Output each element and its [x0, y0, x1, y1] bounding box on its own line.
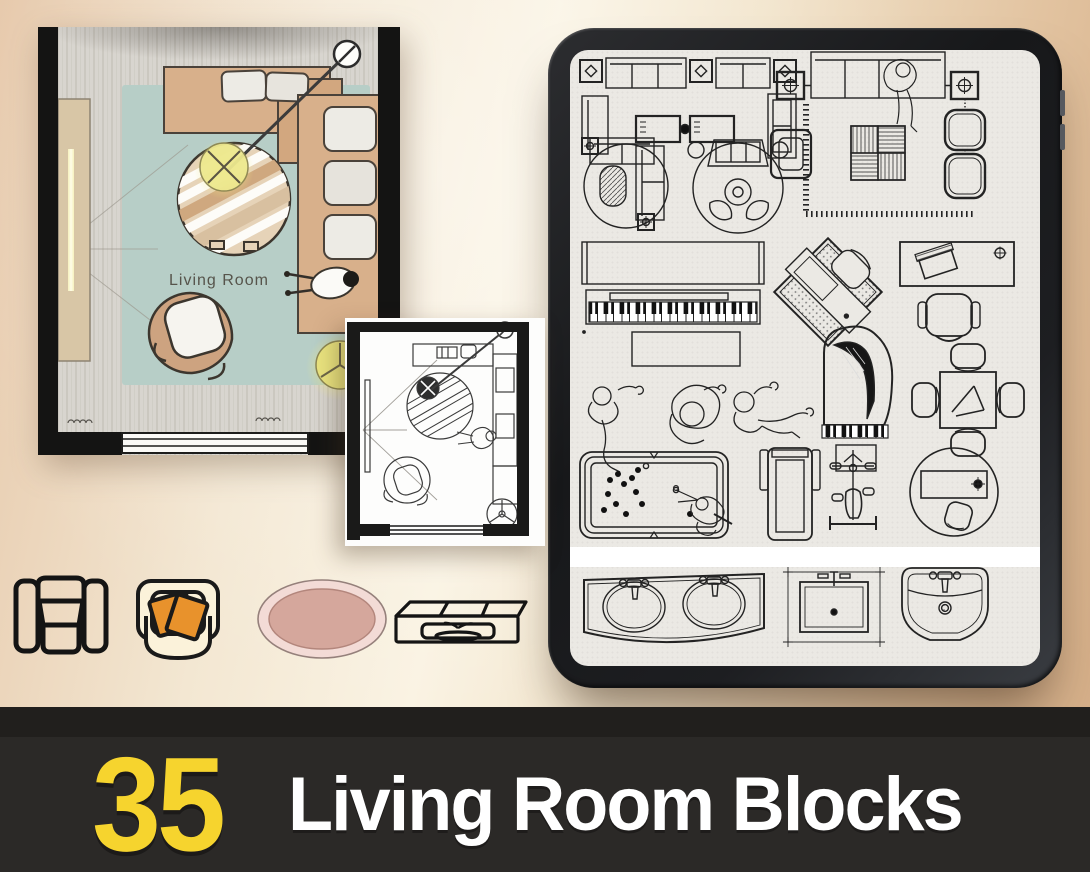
block-upright-piano — [582, 242, 764, 333]
block-sofa-set — [580, 58, 796, 158]
parquet-rug — [851, 126, 905, 180]
tablet-screen — [570, 50, 1040, 666]
armchair-outline-icon — [13, 573, 109, 661]
block-pedestal-sink — [902, 568, 988, 640]
block-person-sitting — [670, 385, 726, 444]
block-double-vanity — [584, 574, 764, 642]
window — [122, 433, 308, 453]
person-on-sofa — [884, 59, 917, 132]
block-office-chair — [918, 294, 980, 341]
tablet-device — [548, 28, 1062, 688]
banner-title: Living Room Blocks — [288, 767, 962, 843]
block-diagonal-desk — [769, 224, 895, 350]
block-square-sink — [783, 567, 885, 647]
oval-rug-icon — [255, 578, 389, 660]
tv-console — [58, 99, 90, 361]
block-person-reclining — [734, 382, 813, 438]
block-grand-piano — [822, 327, 892, 438]
block-treadmill — [760, 448, 820, 540]
block-round-rug-set — [688, 140, 788, 233]
block-piano-bench — [632, 332, 740, 366]
block-desk-laptop — [900, 242, 1014, 286]
title-banner: 35 Living Room Blocks — [0, 707, 1090, 872]
block-exercise-bike — [830, 450, 876, 530]
sketch-floor-plan — [345, 318, 545, 546]
block-pool-table — [580, 452, 732, 538]
volume-down-button — [1060, 124, 1065, 150]
block-count: 35 — [92, 738, 222, 872]
block-rug-scene — [771, 52, 985, 214]
block-round-rug-table — [910, 448, 998, 536]
block-table-four-chairs — [912, 344, 1024, 456]
volume-up-button — [1060, 90, 1065, 116]
block-l-sofa-round-rug — [582, 138, 668, 230]
room-label: Living Room — [169, 272, 269, 289]
screen-divider — [570, 547, 1040, 567]
product-graphic: Living Room — [0, 0, 1090, 872]
armchair-orange-cushions-icon — [133, 578, 223, 662]
furniture-blocks-sheet — [570, 50, 1040, 666]
console-table-icon — [388, 598, 534, 646]
block-person-lounging — [588, 386, 643, 472]
